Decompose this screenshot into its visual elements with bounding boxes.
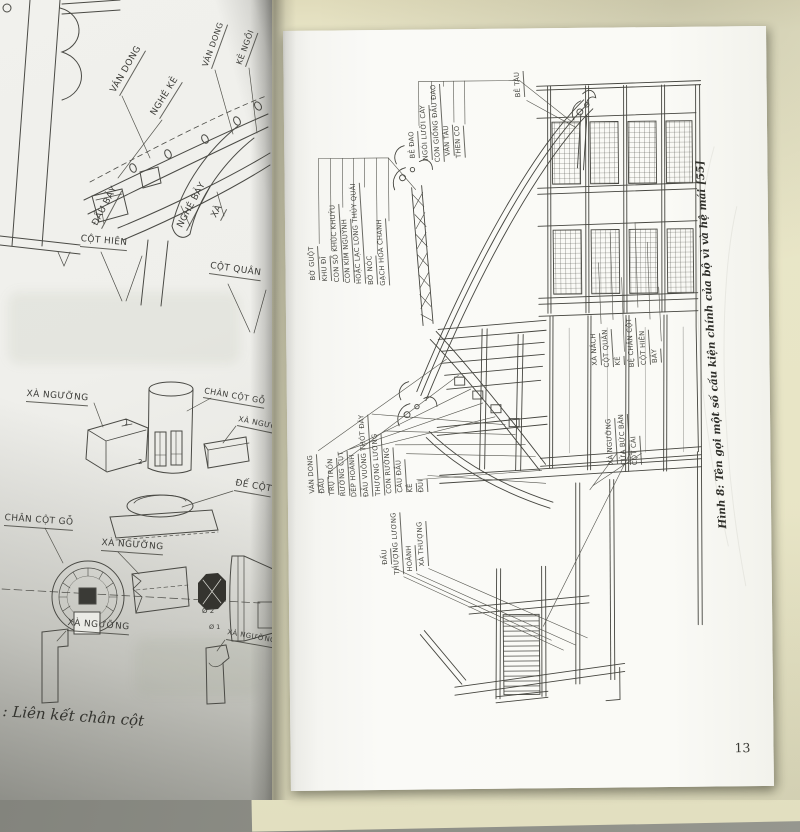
page-showthrough <box>135 638 260 696</box>
left-figure-caption: : Liên kết chân cột <box>2 702 145 730</box>
label-ke-ngoi: KẺ NGỒI <box>234 28 259 67</box>
right-page-line-art <box>283 26 774 791</box>
label-xa-nguong-1: XÀ NGƯỠNG <box>26 389 89 406</box>
label-gach-hoa-chanh: GẠCH HOA CHANH <box>375 219 390 286</box>
label-xa-nach: XÀ NÁCH <box>589 333 602 366</box>
label-chan-cot-go-2: CHÂN CỘT GỖ <box>4 513 74 531</box>
label-nghe-ke: NGHÉ KẺ <box>149 75 183 119</box>
label-cot-quan-r: CỘT QUÂN <box>601 329 614 368</box>
mark-d2: Ø 2 <box>202 607 214 615</box>
label-bo-guot: BỜ GUỘT <box>307 246 320 281</box>
mark-1: 1 <box>124 418 129 427</box>
page-number: 13 <box>734 740 750 755</box>
page-showthrough <box>8 292 240 364</box>
label-dui: ĐUI <box>417 479 428 492</box>
left-page: NGHÉ KẺ VÁN DONG VÁN DONG KẺ NGỒI ĐẦU BẢ… <box>0 0 272 800</box>
label-chan-cot-go-1: CHÂN CỘT GỖ <box>203 385 266 409</box>
label-xa-nguong-right: XÀ NGƯỠNG <box>237 413 272 437</box>
label-cot-quan: CỘT QUÂN <box>209 261 262 281</box>
label-xa: XÀ <box>210 203 228 221</box>
label-van-dong: VÁN DONG <box>306 455 319 494</box>
label-xa-nguong-2: XÀ NGƯỠNG <box>101 538 164 555</box>
label-khu-di: KHU ĐĨ <box>320 256 332 282</box>
label-nghe-bay: NGHÉ BẢY <box>176 181 211 231</box>
label-bay: BẢY <box>650 349 661 364</box>
label-xa-nguong-r: XÀ NGƯỠNG <box>604 418 617 465</box>
mark-d1: Ø 1 <box>209 623 220 631</box>
label-cot-cai: CỘT CÁI <box>629 436 641 466</box>
label-xa-nguong-3: XÀ NGƯỠNG <box>67 618 130 635</box>
label-xa-thuong: XÀ THƯỢNG <box>415 521 428 566</box>
mark-2: 2 <box>138 458 142 466</box>
label-bo-noc: BỜ NÓC <box>365 255 377 285</box>
label-be-chan-cot: BỆ CHÂN CỘT <box>625 318 639 368</box>
label-hoanh: HOÀNH <box>405 545 417 572</box>
label-dau-bay: ĐẦU BẢY <box>91 185 123 229</box>
label-xa-nguong-right-2: XÀ NGƯỠNG <box>226 627 272 648</box>
label-thuong-luong-2: THƯỢNG LƯƠNG <box>389 512 403 575</box>
label-be-dao: BẺ ĐAO <box>407 131 419 159</box>
right-page: BẺ ĐAO NGÓI LƯỠI CÀY CON GIỐNG ĐẦU ĐAO V… <box>283 26 774 791</box>
label-de-cot: ĐẾ CỘT <box>234 478 272 497</box>
label-cot-hien: CỘT HIÊN <box>80 234 128 251</box>
label-con-ruong: CON RƯỜNG <box>382 447 395 494</box>
label-van-dong-big: VÁN DONG <box>109 44 146 96</box>
label-cot-hien-r: CỘT HIÊN <box>638 330 651 365</box>
label-dep-hoanh: DÉP HOÀNH <box>348 454 361 497</box>
label-dau-2: ĐẤU <box>380 549 391 565</box>
figure-caption: Hình 8: Tên gọi một số cấu kiện chính củ… <box>694 160 729 529</box>
label-cau-dau: CÂU ĐẦU <box>394 459 407 492</box>
label-ke: KẺ <box>406 483 417 493</box>
label-be-tau: BẺ TÀU <box>513 71 525 97</box>
label-ke-r: KẺ <box>613 356 624 366</box>
label-van-dong-small: VÁN DONG <box>200 21 228 69</box>
label-then-co: THEN CO <box>453 125 466 158</box>
